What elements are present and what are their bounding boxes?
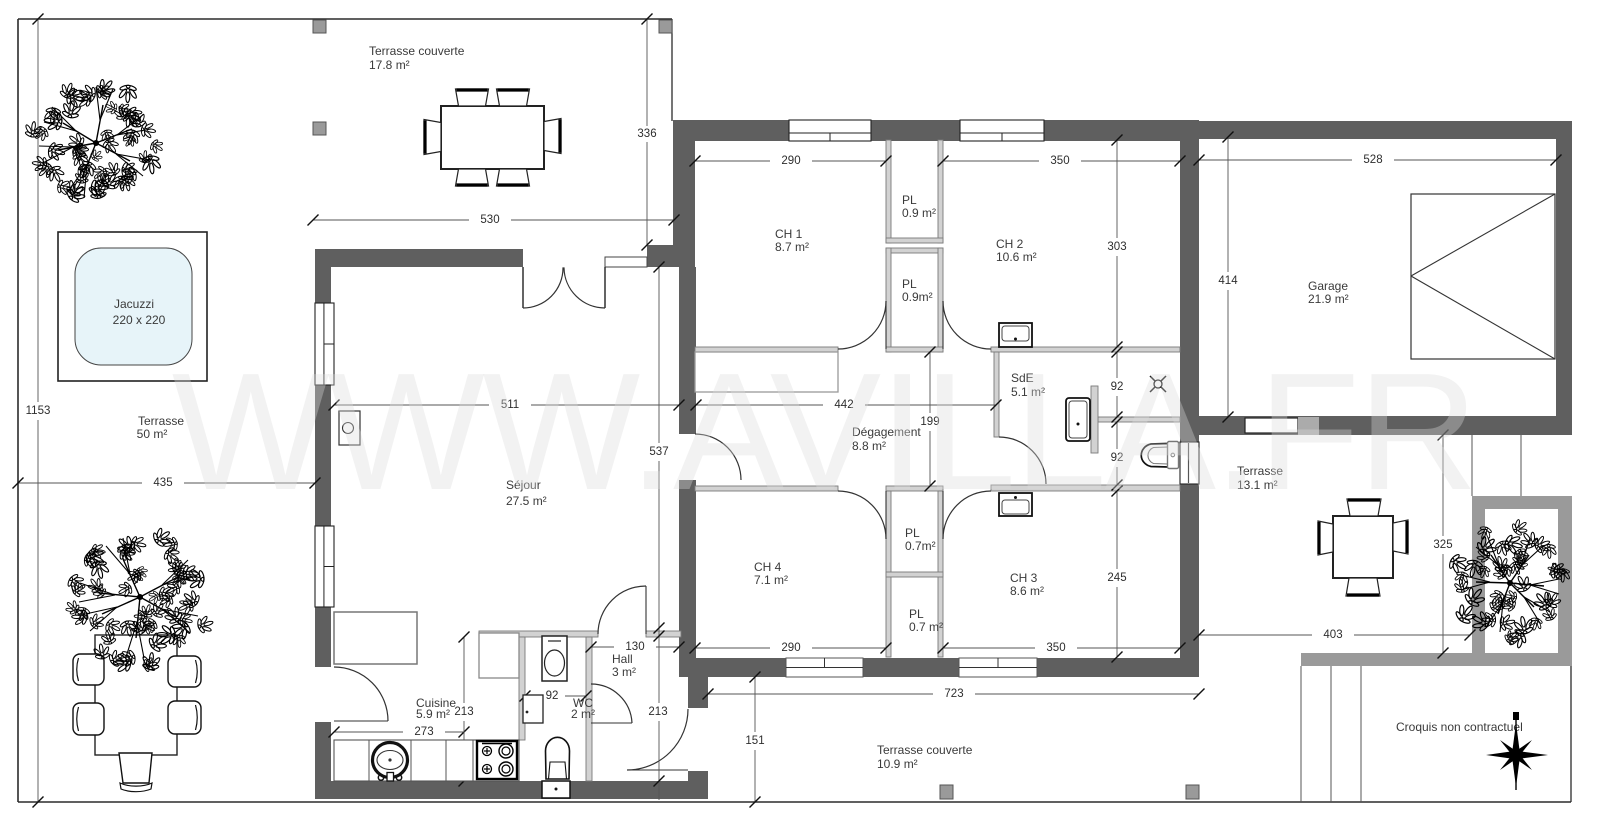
svg-text:0.9m²: 0.9m² (902, 290, 933, 304)
svg-text:3 m²: 3 m² (612, 665, 636, 679)
svg-text:Hall: Hall (612, 652, 633, 666)
svg-text:435: 435 (153, 477, 172, 489)
svg-text:17.8 m²: 17.8 m² (369, 58, 410, 72)
svg-text:0.7 m²: 0.7 m² (909, 620, 943, 634)
svg-text:273: 273 (414, 726, 433, 738)
svg-text:403: 403 (1323, 629, 1342, 641)
svg-text:336: 336 (637, 128, 656, 140)
svg-text:PL: PL (905, 526, 920, 540)
svg-text:WWW.AVILLA.FR: WWW.AVILLA.FR (172, 339, 1476, 525)
svg-text:PL: PL (902, 277, 917, 291)
svg-text:Jacuzzi: Jacuzzi (114, 297, 154, 311)
svg-text:CH 1: CH 1 (775, 227, 803, 241)
svg-text:Garage: Garage (1308, 279, 1348, 293)
svg-text:8.6 m²: 8.6 m² (1010, 584, 1044, 598)
svg-text:2 m²: 2 m² (571, 707, 595, 721)
svg-text:290: 290 (781, 155, 800, 167)
svg-text:0.9 m²: 0.9 m² (902, 206, 936, 220)
svg-text:0.7m²: 0.7m² (905, 539, 936, 553)
svg-text:Terrasse couverte: Terrasse couverte (369, 44, 465, 58)
svg-text:414: 414 (1218, 275, 1238, 287)
svg-text:50 m²: 50 m² (137, 427, 168, 441)
svg-text:5.9 m²: 5.9 m² (416, 707, 450, 721)
svg-text:10.9 m²: 10.9 m² (877, 757, 918, 771)
svg-text:CH 4: CH 4 (754, 560, 782, 574)
svg-text:303: 303 (1107, 241, 1126, 253)
svg-text:325: 325 (1433, 539, 1452, 551)
svg-text:21.9 m²: 21.9 m² (1308, 292, 1349, 306)
svg-text:CH 3: CH 3 (1010, 571, 1038, 585)
svg-text:528: 528 (1363, 154, 1382, 166)
svg-text:350: 350 (1050, 155, 1069, 167)
svg-text:290: 290 (781, 642, 800, 654)
svg-text:7.1 m²: 7.1 m² (754, 573, 788, 587)
svg-text:530: 530 (480, 214, 499, 226)
svg-text:220 x 220: 220 x 220 (113, 313, 166, 327)
svg-text:PL: PL (902, 193, 917, 207)
svg-text:Croquis non contractuel: Croquis non contractuel (1396, 720, 1523, 734)
svg-text:10.6 m²: 10.6 m² (996, 250, 1037, 264)
svg-text:245: 245 (1107, 572, 1126, 584)
svg-text:92: 92 (546, 690, 559, 702)
svg-text:CH 2: CH 2 (996, 237, 1024, 251)
svg-text:1153: 1153 (26, 405, 51, 417)
svg-text:151: 151 (745, 735, 764, 747)
svg-text:723: 723 (944, 688, 963, 700)
svg-text:Terrasse couverte: Terrasse couverte (877, 743, 973, 757)
svg-text:PL: PL (909, 607, 924, 621)
svg-text:350: 350 (1046, 642, 1065, 654)
svg-text:213: 213 (648, 706, 667, 718)
svg-text:8.7 m²: 8.7 m² (775, 240, 809, 254)
svg-text:213: 213 (454, 706, 473, 718)
